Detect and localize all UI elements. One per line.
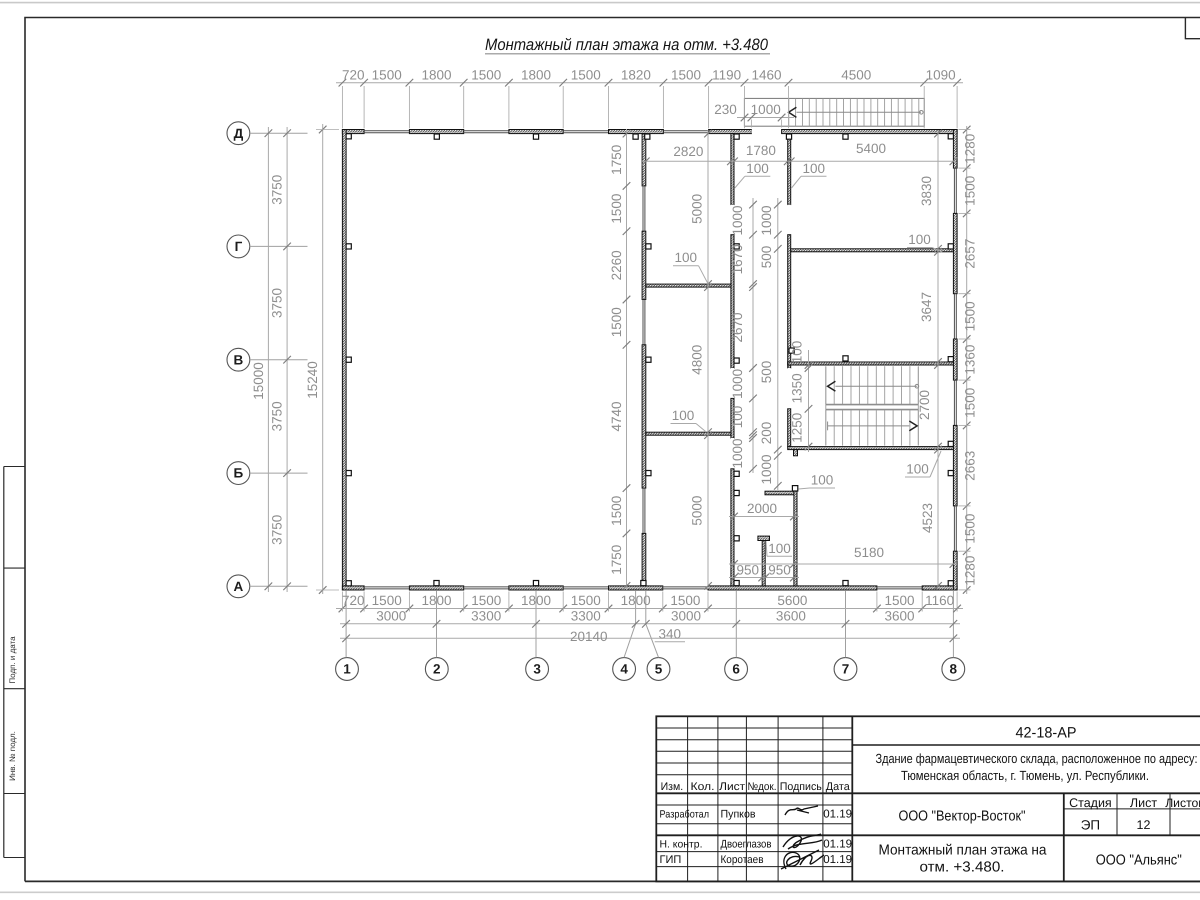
- svg-text:4523: 4523: [920, 503, 935, 533]
- svg-text:950: 950: [768, 563, 791, 578]
- svg-text:1500: 1500: [571, 593, 601, 608]
- svg-text:1670: 1670: [730, 244, 745, 274]
- svg-text:1: 1: [343, 662, 351, 677]
- svg-text:1500: 1500: [884, 593, 914, 608]
- svg-text:2260: 2260: [609, 250, 624, 280]
- svg-text:5180: 5180: [854, 545, 884, 560]
- svg-text:100: 100: [811, 473, 834, 488]
- svg-text:3750: 3750: [270, 401, 285, 431]
- svg-text:отм. +3.480.: отм. +3.480.: [920, 860, 1005, 876]
- svg-text:Изм.: Изм.: [661, 781, 684, 793]
- svg-text:100: 100: [672, 408, 695, 423]
- svg-text:2663: 2663: [963, 451, 978, 481]
- svg-text:1350: 1350: [790, 373, 805, 403]
- svg-text:1000: 1000: [759, 205, 774, 235]
- svg-text:15000: 15000: [251, 362, 266, 400]
- svg-text:Кол.: Кол.: [691, 781, 715, 793]
- svg-text:3647: 3647: [919, 292, 934, 322]
- svg-text:2700: 2700: [917, 390, 932, 420]
- svg-text:Подп. и дата: Подп. и дата: [8, 636, 17, 684]
- svg-text:2000: 2000: [747, 501, 777, 516]
- svg-text:1500: 1500: [609, 496, 624, 526]
- svg-text:100: 100: [768, 541, 791, 556]
- svg-text:5000: 5000: [690, 194, 705, 224]
- svg-text:5: 5: [655, 662, 663, 677]
- svg-text:1090: 1090: [926, 67, 956, 82]
- svg-text:1000: 1000: [730, 438, 745, 468]
- svg-text:1500: 1500: [670, 593, 700, 608]
- svg-text:1500: 1500: [609, 194, 624, 224]
- svg-text:950: 950: [737, 563, 760, 578]
- svg-text:1750: 1750: [609, 145, 624, 175]
- svg-text:4740: 4740: [609, 401, 624, 431]
- svg-text:20140: 20140: [570, 629, 608, 644]
- svg-text:1160: 1160: [925, 593, 954, 608]
- svg-text:3830: 3830: [919, 176, 934, 206]
- svg-text:3000: 3000: [671, 609, 701, 624]
- svg-text:1460: 1460: [751, 67, 781, 82]
- svg-text:№док.: №док.: [748, 781, 777, 793]
- svg-text:7: 7: [842, 662, 850, 677]
- svg-text:100: 100: [746, 161, 769, 176]
- svg-text:1780: 1780: [746, 143, 776, 158]
- svg-text:720: 720: [342, 593, 365, 608]
- svg-text:3750: 3750: [270, 288, 285, 318]
- svg-text:5600: 5600: [777, 593, 807, 608]
- svg-text:Стадия: Стадия: [1069, 796, 1112, 810]
- svg-text:1280: 1280: [963, 556, 978, 586]
- svg-text:1500: 1500: [963, 176, 978, 206]
- svg-text:1250: 1250: [790, 413, 805, 443]
- svg-text:3000: 3000: [376, 609, 406, 624]
- svg-text:Здание фармацевтического склад: Здание фармацевтического склада, располо…: [876, 751, 1198, 766]
- svg-text:1800: 1800: [521, 67, 551, 82]
- svg-text:8: 8: [950, 662, 958, 677]
- svg-text:1800: 1800: [421, 67, 451, 82]
- svg-text:500: 500: [759, 246, 774, 269]
- svg-text:1000: 1000: [759, 454, 774, 484]
- svg-text:1500: 1500: [963, 301, 978, 331]
- svg-text:1500: 1500: [671, 67, 701, 82]
- svg-text:42-18-АР: 42-18-АР: [1016, 725, 1077, 742]
- svg-text:100: 100: [675, 250, 698, 265]
- svg-text:1500: 1500: [963, 388, 978, 418]
- svg-text:В: В: [234, 352, 244, 367]
- svg-text:3750: 3750: [270, 175, 285, 205]
- svg-text:100: 100: [790, 341, 805, 364]
- svg-text:ГИП: ГИП: [660, 854, 682, 866]
- svg-text:1000: 1000: [730, 205, 745, 235]
- svg-text:Инв. № подл.: Инв. № подл.: [8, 731, 17, 781]
- svg-text:2: 2: [433, 662, 441, 677]
- svg-text:1500: 1500: [372, 67, 402, 82]
- svg-text:01.19: 01.19: [823, 809, 852, 821]
- svg-text:1500: 1500: [963, 514, 978, 544]
- svg-text:1500: 1500: [471, 67, 501, 82]
- svg-text:Тюменская область, г. Тюмень,: Тюменская область, г. Тюмень, ул. Респуб…: [901, 768, 1149, 783]
- svg-text:1500: 1500: [571, 67, 601, 82]
- svg-text:500: 500: [759, 361, 774, 384]
- svg-text:Пупков: Пупков: [721, 809, 756, 821]
- svg-text:Коротаев: Коротаев: [721, 854, 764, 866]
- svg-text:1800: 1800: [521, 593, 551, 608]
- svg-text:Разработал: Разработал: [660, 809, 710, 821]
- svg-text:А: А: [234, 579, 244, 594]
- svg-text:1190: 1190: [712, 67, 741, 82]
- svg-text:3750: 3750: [270, 515, 285, 545]
- svg-text:100: 100: [730, 406, 745, 429]
- svg-text:4800: 4800: [690, 345, 705, 375]
- svg-text:15240: 15240: [305, 361, 320, 399]
- svg-text:ООО "Альянс": ООО "Альянс": [1096, 853, 1182, 869]
- svg-text:ЭП: ЭП: [1081, 818, 1100, 833]
- svg-text:1820: 1820: [621, 67, 651, 82]
- svg-text:5400: 5400: [856, 141, 886, 156]
- svg-text:Н. контр.: Н. контр.: [660, 839, 703, 851]
- svg-text:3600: 3600: [776, 609, 806, 624]
- svg-text:1000: 1000: [751, 102, 781, 117]
- svg-text:Листов: Листов: [1165, 796, 1200, 810]
- svg-text:3300: 3300: [471, 609, 501, 624]
- svg-text:200: 200: [759, 422, 774, 445]
- svg-text:2670: 2670: [730, 312, 745, 342]
- svg-text:Монтажный план этажа на: Монтажный план этажа на: [879, 843, 1048, 859]
- svg-text:2657: 2657: [963, 239, 978, 269]
- svg-text:5000: 5000: [690, 496, 705, 526]
- svg-text:100: 100: [908, 232, 931, 247]
- svg-text:Д: Д: [234, 126, 244, 141]
- svg-text:1800: 1800: [621, 593, 651, 608]
- svg-text:Подпись: Подпись: [780, 781, 822, 793]
- svg-text:01.19: 01.19: [823, 854, 852, 866]
- svg-text:ООО "Вектор-Восток": ООО "Вектор-Восток": [899, 809, 1026, 825]
- svg-text:2820: 2820: [673, 144, 703, 159]
- svg-text:3600: 3600: [884, 609, 914, 624]
- svg-text:6: 6: [732, 662, 740, 677]
- svg-text:12: 12: [1137, 818, 1151, 832]
- svg-text:230: 230: [714, 102, 737, 117]
- svg-text:1500: 1500: [372, 593, 402, 608]
- svg-text:1360: 1360: [963, 345, 978, 375]
- svg-text:100: 100: [906, 462, 929, 477]
- svg-text:Лист: Лист: [719, 781, 745, 793]
- svg-text:1800: 1800: [421, 593, 451, 608]
- svg-text:Монтажный план этажа на отм. +: Монтажный план этажа на отм. +3.480: [485, 36, 769, 54]
- svg-text:100: 100: [803, 161, 826, 176]
- svg-text:4500: 4500: [841, 67, 871, 82]
- svg-text:01.19: 01.19: [823, 839, 852, 851]
- svg-text:4: 4: [620, 662, 628, 677]
- svg-text:3: 3: [533, 662, 541, 677]
- svg-text:1500: 1500: [471, 593, 501, 608]
- svg-text:1280: 1280: [963, 134, 978, 164]
- svg-text:720: 720: [342, 67, 365, 82]
- svg-text:Б: Б: [234, 466, 244, 481]
- svg-text:Двоеглазов: Двоеглазов: [721, 839, 772, 851]
- svg-text:3300: 3300: [571, 609, 601, 624]
- svg-text:Г: Г: [235, 239, 243, 254]
- svg-text:1500: 1500: [609, 307, 624, 337]
- svg-text:Дата: Дата: [826, 781, 851, 793]
- svg-text:1750: 1750: [609, 545, 624, 575]
- svg-text:1000: 1000: [730, 369, 745, 399]
- svg-text:340: 340: [659, 627, 682, 642]
- svg-text:Лист: Лист: [1130, 796, 1157, 810]
